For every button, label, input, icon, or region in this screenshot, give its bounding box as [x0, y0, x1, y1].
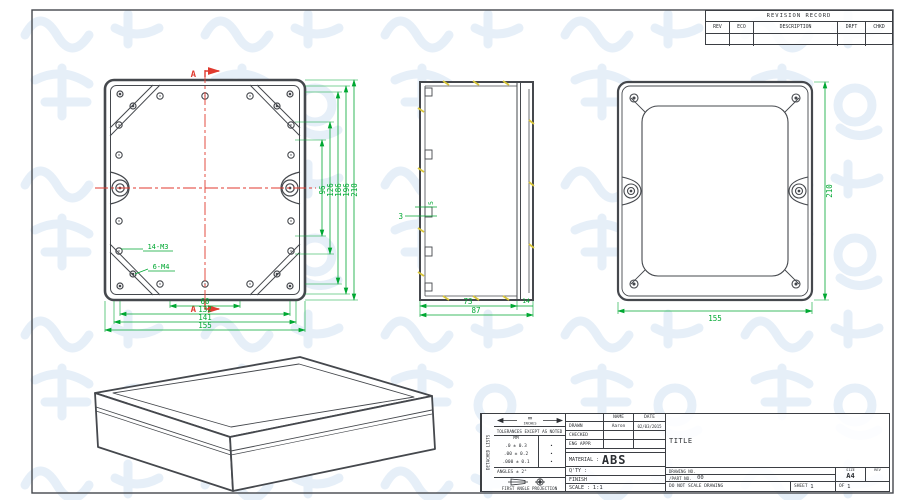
- scale-value: 1:1: [593, 485, 603, 491]
- angles-tolerance: ANGLES ± 2°: [494, 468, 566, 478]
- eng-appr-label: ENG APPR: [566, 440, 604, 449]
- revision-empty-cell: [730, 34, 754, 46]
- back-view: [618, 82, 812, 300]
- tolerances-heading: TOLERANCES EXCEPT AS NOTED: [494, 427, 566, 436]
- dimension-label: 14: [522, 297, 530, 305]
- tolerance-table: MM .0 ± 0.3 .00 ± 0.2 .000 ± 0.1 • • •: [494, 436, 566, 468]
- dimension-label: 155: [198, 321, 212, 330]
- tolerance-mark: •: [538, 452, 565, 460]
- revision-empty-cell: [838, 34, 866, 46]
- drawing-no-label: DRAWING NO.: [666, 468, 836, 475]
- isometric-view: [95, 357, 435, 491]
- checked-label: CHECKED: [566, 431, 604, 440]
- drawn-name: Aaron: [604, 422, 634, 431]
- revision-record-table: REVISION RECORD REV ECO DESCRIPTION DRFT…: [705, 10, 893, 45]
- sheet-cell: SHEET 1: [791, 482, 836, 491]
- units-primary: MM: [527, 416, 532, 420]
- tolerance-mark: •: [538, 460, 565, 468]
- title-block-side-strip: DETACHED LISTS: [481, 414, 494, 491]
- hole-callout-m3: 14-M3: [147, 243, 168, 251]
- projection-cell: FIRST ANGLE PROJECTION: [494, 478, 566, 491]
- of-label: OF: [839, 484, 844, 489]
- revision-col-drft: DRFT: [838, 22, 866, 33]
- header-spacer-cell: [566, 414, 604, 422]
- revision-col-description: DESCRIPTION: [754, 22, 838, 33]
- section-label-top: A: [191, 70, 197, 80]
- checked-name: [604, 431, 634, 440]
- units-arrows-icon: MM INCHES: [495, 415, 565, 426]
- qty-label: Q'TY :: [566, 467, 666, 476]
- drawn-date: 02/03/2015: [634, 422, 666, 431]
- part-no-label: /PART NO.: [669, 476, 692, 481]
- tolerance-mark: •: [538, 444, 565, 452]
- sheet-value: 1: [810, 484, 813, 490]
- material-value: ABS: [602, 453, 627, 467]
- revision-empty-cell: [706, 34, 730, 46]
- part-no-cell: /PART NO. 00: [666, 475, 836, 482]
- revision-col-rev: REV: [706, 22, 730, 33]
- drawn-label: DRAWN: [566, 422, 604, 431]
- dimension-label: 5: [427, 201, 435, 205]
- name-header: NAME: [604, 414, 634, 422]
- size-value: A4: [836, 472, 865, 480]
- dimension-label: 3: [398, 212, 403, 221]
- title-block: DETACHED LISTS MM INCHES TOLERANCES EXCE…: [480, 413, 890, 492]
- rev-label: REV: [866, 468, 889, 472]
- hole-callout-m4: 6-M4: [153, 263, 170, 271]
- do-not-scale-note: DO NOT SCALE DRAWING: [666, 482, 791, 491]
- rev-cell: REV: [866, 468, 889, 482]
- dimension-label: 155: [708, 314, 722, 323]
- section-label-bottom: A: [191, 305, 197, 315]
- sheet-label: SHEET: [794, 484, 808, 489]
- material-label: MATERIAL :: [569, 457, 599, 463]
- revision-record-title: REVISION RECORD: [706, 11, 892, 22]
- revision-col-eco: ECO: [730, 22, 754, 33]
- date-header: DATE: [634, 414, 666, 422]
- eng-appr-date: [634, 440, 666, 449]
- size-cell: SIZE A4: [836, 468, 866, 482]
- first-angle-projection-icon: [495, 478, 565, 486]
- units-cell: MM INCHES: [494, 414, 566, 427]
- side-view: [420, 82, 533, 300]
- of-value: 1: [847, 484, 850, 490]
- dimension-label: 210: [825, 184, 834, 198]
- units-secondary: INCHES: [523, 421, 536, 425]
- tolerance-row: .00 ± 0.2: [494, 452, 539, 460]
- revision-empty-cell: [866, 34, 892, 46]
- tolerance-unit-header: MM: [494, 436, 539, 444]
- revision-empty-cell: [754, 34, 838, 46]
- part-no-value: 00: [697, 475, 704, 481]
- projection-label: FIRST ANGLE PROJECTION: [494, 486, 565, 491]
- material-cell: MATERIAL : ABS: [566, 453, 666, 467]
- tolerance-row: .0 ± 0.3: [494, 444, 539, 452]
- revision-col-chkd: CHKD: [866, 22, 892, 33]
- finish-label: FINISH: [566, 476, 666, 484]
- of-cell: OF 1: [836, 482, 889, 491]
- eng-appr-name: [604, 440, 634, 449]
- tolerance-row: .000 ± 0.1: [494, 460, 539, 468]
- checked-date: [634, 431, 666, 440]
- scale-label: SCALE :: [569, 485, 590, 491]
- dimension-label: 87: [471, 306, 480, 315]
- title-cell: TITLE: [666, 414, 889, 468]
- dimension-label: 210: [350, 183, 359, 197]
- dimension-label: 73: [463, 297, 472, 306]
- scale-cell: SCALE : 1:1: [566, 484, 666, 491]
